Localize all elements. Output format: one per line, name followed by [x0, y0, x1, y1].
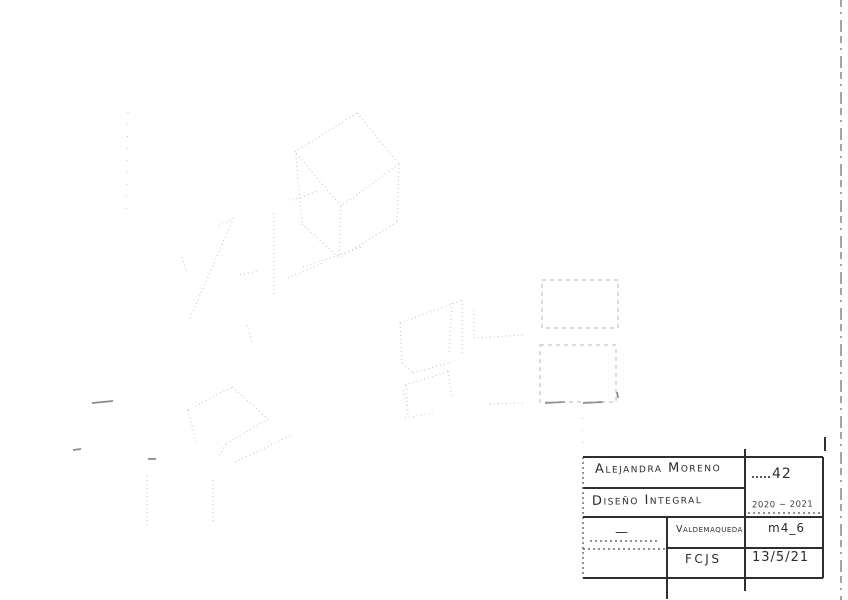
dotted-leader: [752, 467, 770, 478]
course-title: Diseño Integral: [592, 492, 703, 509]
sheet-number-value: 42: [772, 466, 792, 482]
sheet-number: 42: [752, 466, 792, 482]
school-code: FCJS: [685, 552, 721, 566]
left-note-dash: —: [615, 525, 630, 540]
location-name: Valdemaqueda: [676, 524, 743, 535]
module-code: m4_6: [768, 521, 805, 535]
author-name: Alejandra Moreno: [595, 460, 721, 477]
sketch-canvas: [0, 0, 848, 600]
scanned-drawing-page: Alejandra Moreno Diseño Integral 42 2020…: [0, 0, 848, 600]
academic-period: 2020 ~ 2021: [752, 499, 813, 510]
date-value: 13/5/21: [752, 550, 809, 565]
